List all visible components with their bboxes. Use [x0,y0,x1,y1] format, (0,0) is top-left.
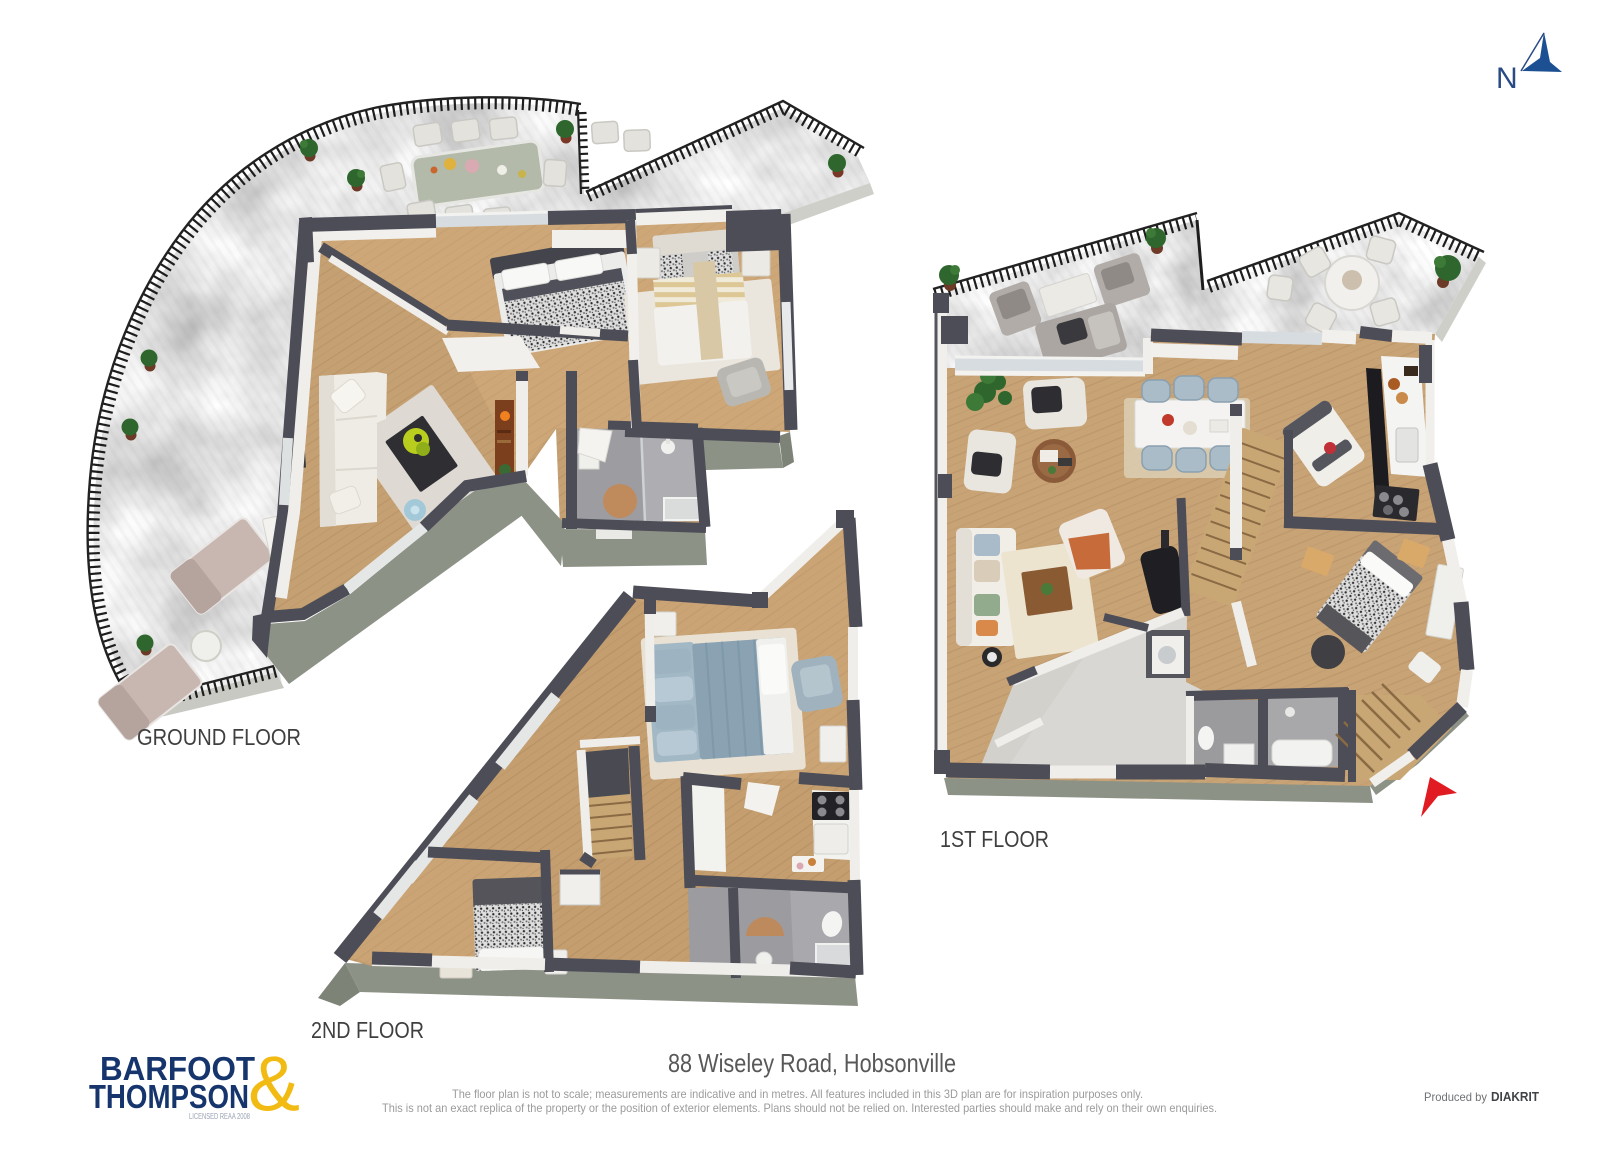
svg-text:Produced by: Produced by [1424,1090,1487,1104]
svg-text:DIAKRIT: DIAKRIT [1491,1089,1539,1104]
svg-text:This is not an exact replica o: This is not an exact replica of the prop… [382,1101,1217,1115]
svg-text:LICENSED REAA 2008: LICENSED REAA 2008 [189,1112,250,1121]
svg-text:THOMPSON: THOMPSON [89,1078,249,1115]
svg-text:The floor plan is not to scale: The floor plan is not to scale; measurem… [452,1087,1143,1101]
svg-text:&: & [248,1039,300,1127]
svg-text:N: N [1496,62,1518,95]
svg-text:2ND FLOOR: 2ND FLOOR [311,1017,424,1043]
svg-text:1ST FLOOR: 1ST FLOOR [940,826,1049,852]
svg-text:88 Wiseley Road, Hobsonville: 88 Wiseley Road, Hobsonville [668,1048,956,1078]
svg-text:GROUND FLOOR: GROUND FLOOR [137,724,301,750]
